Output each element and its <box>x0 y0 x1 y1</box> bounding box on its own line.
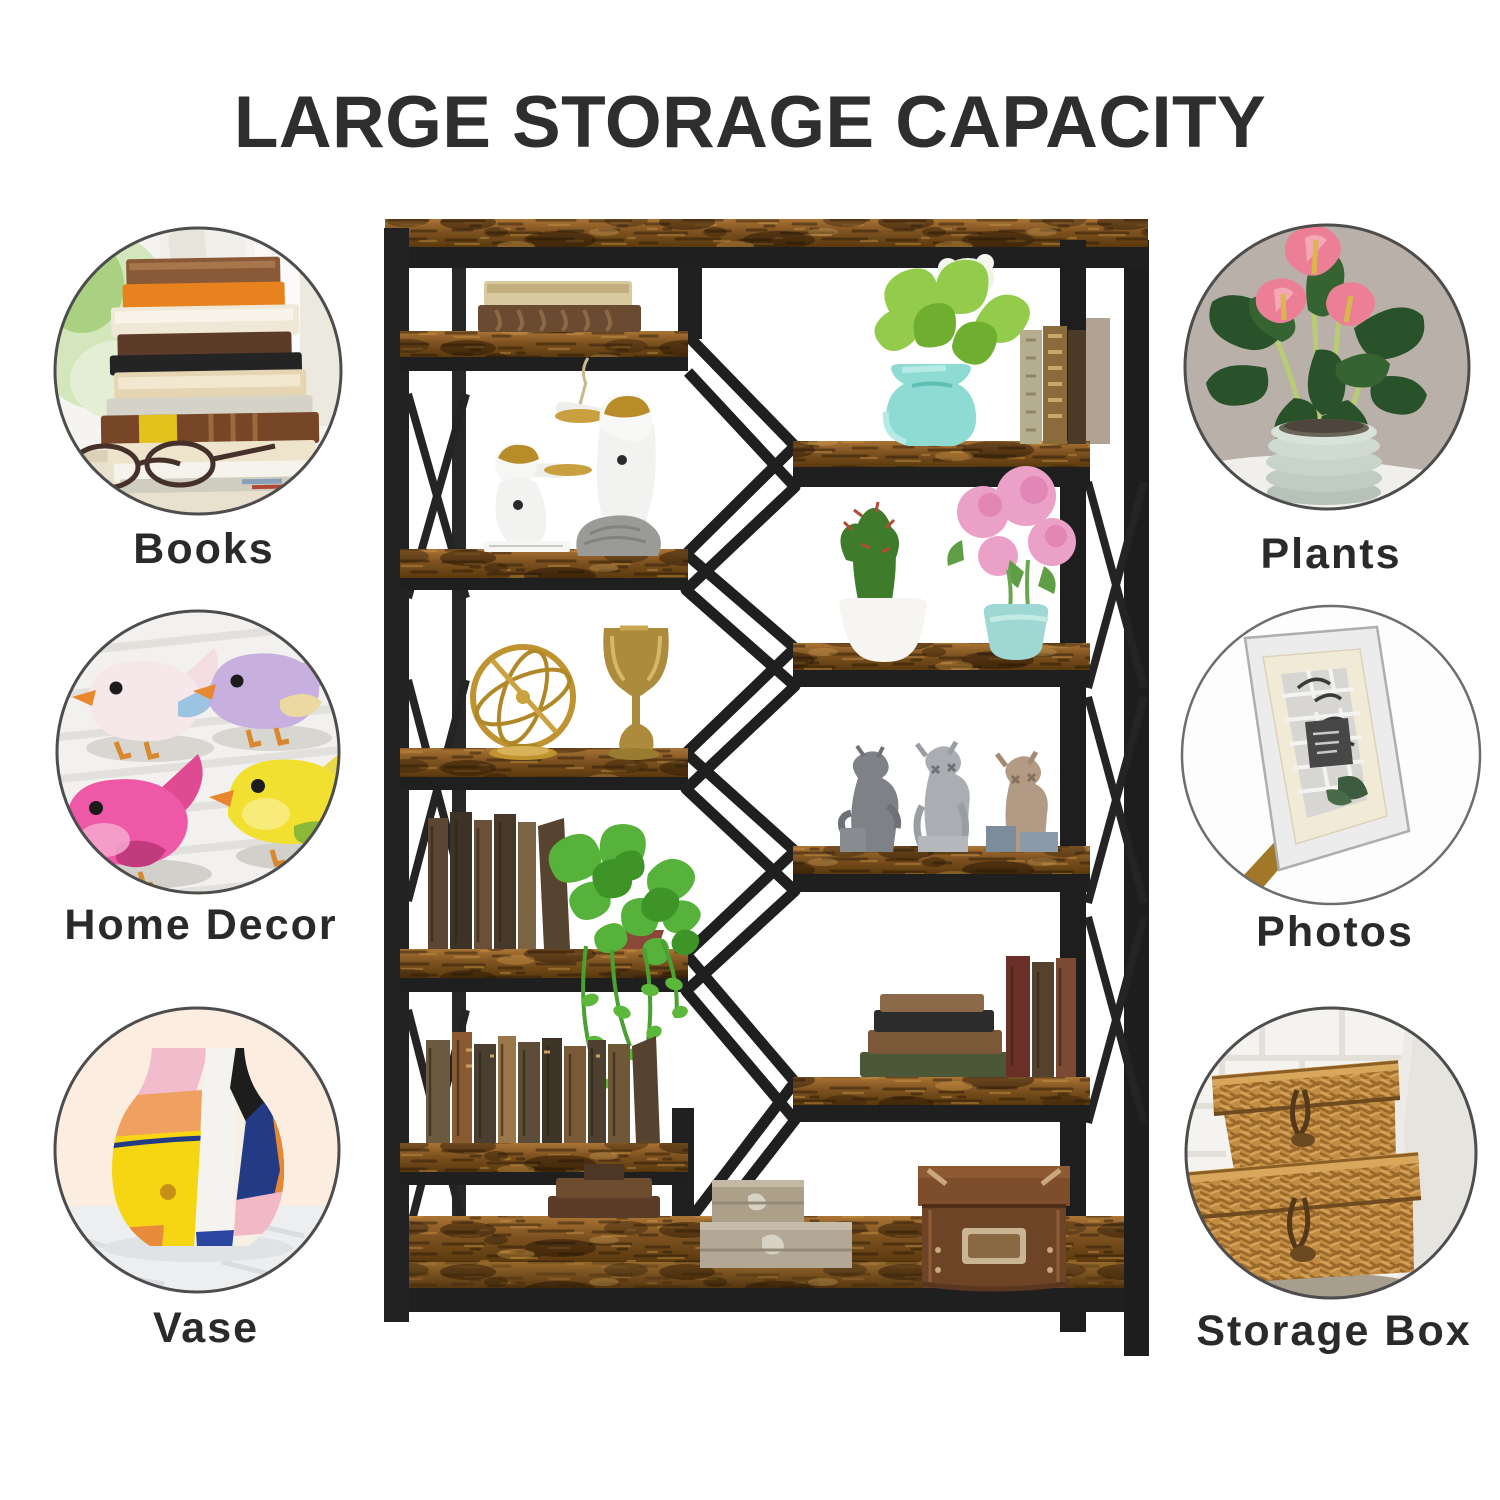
svg-text:Vase: Vase <box>153 1304 259 1352</box>
svg-text:LARGE STORAGE CAPACITY: LARGE STORAGE CAPACITY <box>234 82 1266 163</box>
svg-text:Home Decor: Home Decor <box>64 901 337 949</box>
svg-text:Storage Box: Storage Box <box>1196 1307 1471 1355</box>
svg-text:Books: Books <box>133 525 274 573</box>
svg-text:Plants: Plants <box>1260 530 1401 578</box>
svg-text:Photos: Photos <box>1256 908 1414 956</box>
